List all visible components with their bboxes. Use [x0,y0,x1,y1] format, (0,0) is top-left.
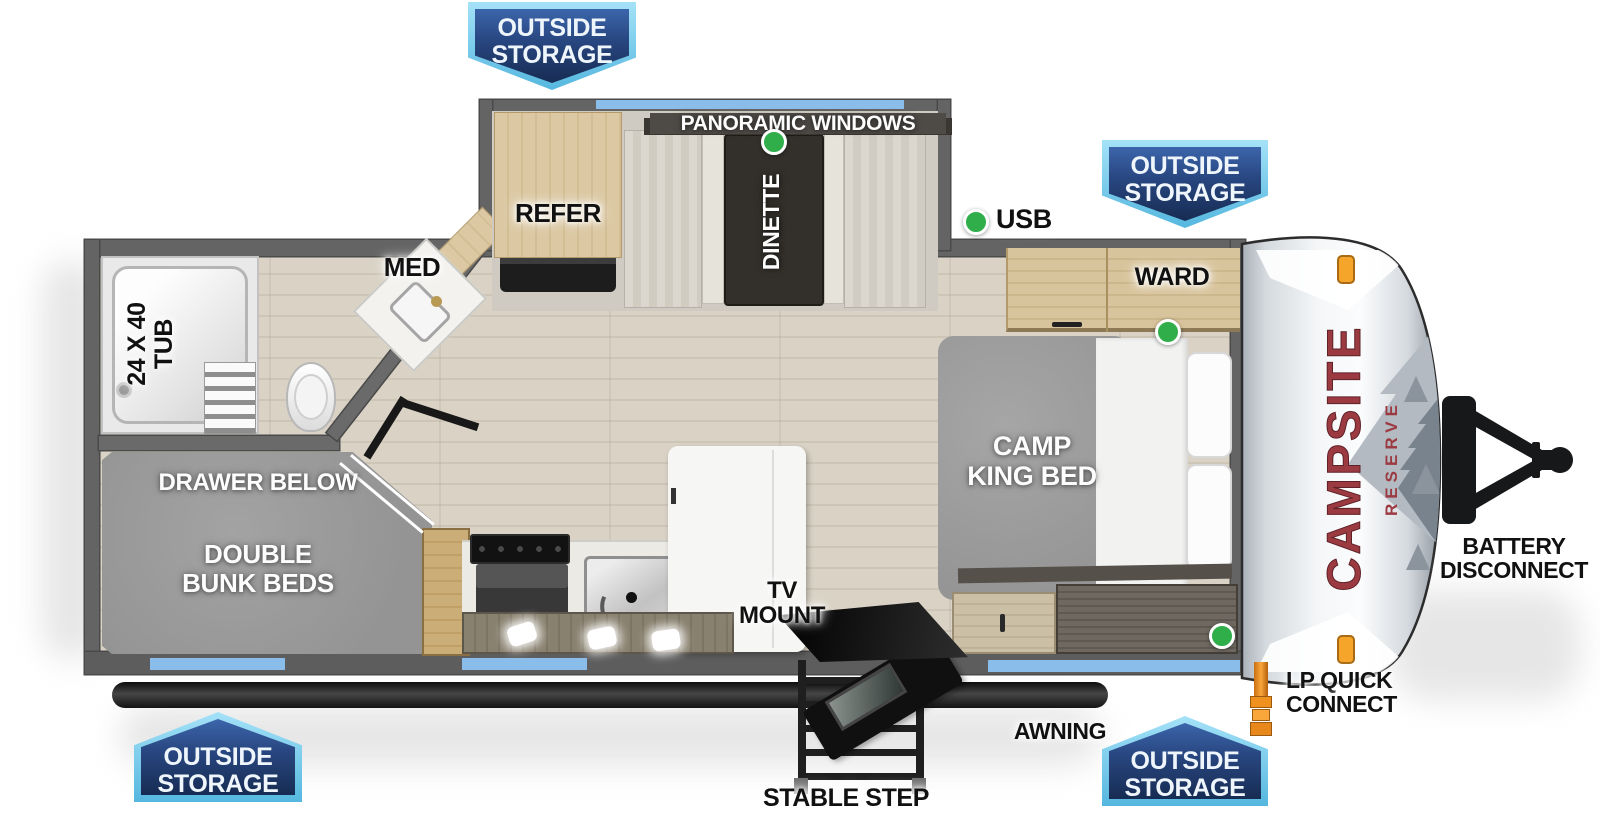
tub-size-text: 24 X 40 [124,284,151,404]
ward-seam [1106,248,1108,332]
dinette-label: DINETTE [759,142,789,302]
pendant-light [651,628,682,652]
bunk-label: DOUBLE BUNK BEDS [160,540,356,597]
window-strip-bottom-left [150,658,285,670]
refrigerator-front [500,258,616,292]
tv-mount-label: TV MOUNT [722,578,842,629]
badge-line1: OUTSIDE [468,15,636,42]
tub-text: TUB [151,284,178,404]
refer-label: REFER [496,200,620,228]
outside-storage-badge-bottom-right: OUTSIDE STORAGE [1102,716,1268,806]
wall-left [85,240,99,674]
badge-line2: STORAGE [1102,180,1268,207]
dinette-bench-right [844,130,926,308]
lp-quick-connect-pipe [1254,662,1268,698]
marker-light-top [1338,256,1354,283]
tub-steps [204,362,256,434]
battery-line2: DISCONNECT [1428,558,1600,582]
badge-line2: STORAGE [134,771,302,798]
front-cap: CAMPSITE RESERVE [1230,226,1576,696]
badge-text: OUTSIDE STORAGE [1102,748,1268,801]
badge-line2: STORAGE [468,42,636,69]
med-label: MED [374,254,450,282]
bathroom-wall-bottom [99,436,339,450]
bed-pillow-top [1186,352,1232,458]
bunk-label-line1: DOUBLE [160,540,356,569]
badge-text: OUTSIDE STORAGE [134,744,302,797]
badge-line1: OUTSIDE [1102,748,1268,775]
outside-storage-badge-top-right: OUTSIDE STORAGE [1102,140,1268,228]
lp-line2: CONNECT [1286,692,1416,716]
window-strip-bottom-right [988,660,1240,672]
window-strip-bottom-center [462,658,587,670]
drawer-below-label: DRAWER BELOW [150,470,366,496]
bed-pillow-bottom [1186,464,1232,570]
brand-series: RESERVE [1382,400,1401,516]
camp-king-line2: KING BED [952,462,1112,492]
lp-line1: LP QUICK [1286,668,1416,692]
bunk-label-line2: BUNK BEDS [160,569,356,598]
stove-cooktop [470,534,570,564]
badge-line2: STORAGE [1102,775,1268,802]
green-dot-dinette [761,129,787,155]
tv-label-line1: TV [722,578,842,603]
battery-line1: BATTERY [1428,534,1600,558]
panoramic-windows-label: PANORAMIC WINDOWS [650,112,946,135]
marker-light-bottom [1338,636,1354,663]
floorplan-canvas: AWNING 24 X 40 TUB MED DRAWER BELOW DOUB… [0,0,1600,840]
toilet-seat [294,374,328,420]
hitch-tongue [1442,396,1573,524]
camp-king-line1: CAMP [952,432,1112,462]
dinette-bench-left [624,130,702,308]
island-handle [671,488,676,504]
ward-handles [1052,322,1082,327]
badge-text: OUTSIDE STORAGE [468,15,636,68]
brand-name: CAMPSITE [1317,325,1370,592]
med-faucet [431,296,442,307]
sink-drain [626,592,637,603]
tv-label-line2: MOUNT [722,603,842,628]
stable-step-label: STABLE STEP [760,785,932,812]
awning-bar [112,682,1108,708]
lp-quick-connect-ring1 [1250,696,1272,708]
badge-text: OUTSIDE STORAGE [1102,153,1268,206]
window-strip-slide-top [596,100,904,109]
outside-storage-badge-top: OUTSIDE STORAGE [468,2,636,90]
refer-cabinet [494,112,622,258]
dresser-handle [1000,614,1005,632]
tub-label: 24 X 40 TUB [124,284,180,404]
battery-disconnect-label: BATTERY DISCONNECT [1428,534,1600,583]
ward-label: WARD [1122,264,1222,291]
outside-storage-badge-bottom-left: OUTSIDE STORAGE [134,712,302,802]
usb-label: USB [996,205,1066,234]
green-dot-bed-bottom [1209,623,1235,649]
green-dot-bed-top [1155,319,1181,345]
dinette-armrest-left [702,134,724,304]
green-dot-usb [963,209,989,235]
dinette-armrest-right [824,134,844,304]
lp-quick-connect-label: LP QUICK CONNECT [1286,668,1416,717]
camp-king-bed-label: CAMP KING BED [952,432,1112,491]
badge-line1: OUTSIDE [1102,153,1268,180]
badge-line1: OUTSIDE [134,744,302,771]
